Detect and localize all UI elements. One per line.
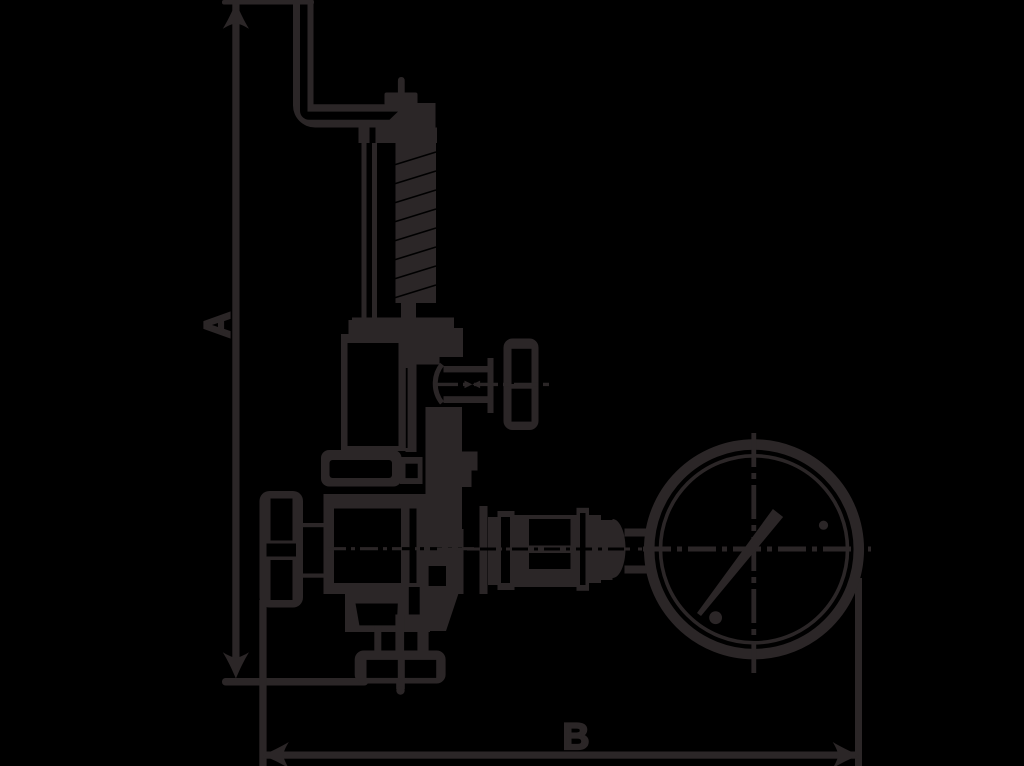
svg-text:B: B	[563, 716, 590, 757]
svg-text:A: A	[197, 312, 238, 338]
